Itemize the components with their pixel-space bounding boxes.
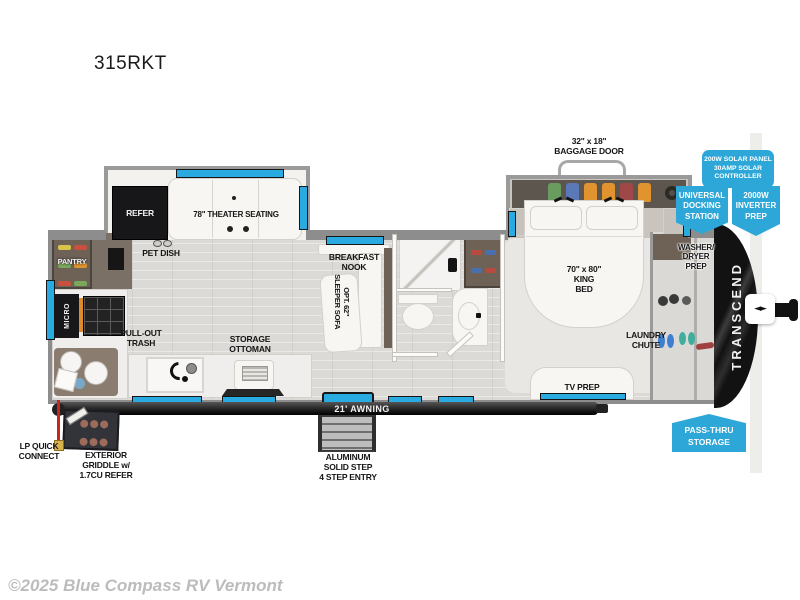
king-bed-label: 70" x 80" KING BED xyxy=(544,264,624,294)
cupholder-icon xyxy=(227,226,233,232)
hitch-arrows-icon: ◄► xyxy=(754,305,766,314)
speaker-icon-center xyxy=(669,190,675,196)
awning-label: 21' AWNING xyxy=(326,404,398,415)
floorplan-image: 315RKT REFER 78" THEATER SEATING PET DIS… xyxy=(0,0,800,600)
transcend-logo: TRANSCEND xyxy=(730,262,743,371)
burger-icon xyxy=(100,420,108,428)
baggage-door-label: 32" x 18" BAGGAGE DOOR xyxy=(540,136,638,156)
faucet-icon xyxy=(182,376,188,382)
pantry-label: PANTRY xyxy=(52,258,92,267)
range-accent xyxy=(79,298,83,332)
pantry-item-icon xyxy=(58,245,71,250)
towel-icon xyxy=(485,268,496,273)
steps-label: ALUMINUM SOLID STEP 4 STEP ENTRY xyxy=(304,452,392,482)
wall-segment xyxy=(48,230,106,240)
bath-wall xyxy=(500,234,505,362)
hitch-coupler xyxy=(789,299,798,321)
seat-divider xyxy=(258,180,259,238)
cupholder-icon xyxy=(232,196,236,200)
drain-icon xyxy=(186,363,197,374)
washer-dryer-label: WASHER/ DRYER PREP xyxy=(670,243,722,271)
bed-crease xyxy=(526,236,642,237)
burger-icon xyxy=(99,438,107,446)
towel-icon xyxy=(471,268,482,273)
solar-badge: 200W SOLAR PANEL 30AMP SOLAR CONTROLLER xyxy=(702,150,774,188)
pantry-item-icon xyxy=(74,281,87,286)
burger-icon xyxy=(79,438,87,446)
kitchen-window xyxy=(46,280,55,340)
bath-wall xyxy=(396,288,452,292)
griddle-label: EXTERIOR GRIDDLE w/ 1.7CU REFER xyxy=(66,450,146,480)
page-title: 315RKT xyxy=(94,54,167,73)
bath-wall xyxy=(392,352,438,357)
refrigerator-label: REFER xyxy=(112,208,168,218)
microwave: MICRO xyxy=(55,294,79,338)
storage-ottoman-label: STORAGE OTTOMAN xyxy=(216,334,284,354)
slideout-window xyxy=(176,169,284,178)
pet-dish-icon xyxy=(153,240,162,247)
pillow xyxy=(586,206,638,230)
nook-window xyxy=(326,236,384,245)
pet-dish-label: PET DISH xyxy=(128,248,194,258)
toilet xyxy=(402,303,434,330)
pillow xyxy=(530,206,582,230)
burger-icon xyxy=(89,438,97,446)
ottoman-mat xyxy=(222,389,284,396)
faucet-icon xyxy=(476,313,481,318)
shoe-icon xyxy=(658,296,668,306)
slideout-window xyxy=(299,186,308,230)
entry-steps xyxy=(318,415,376,452)
breakfast-nook-label: BREAKFAST NOOK xyxy=(314,252,394,272)
inverter-prep-badge: 2000W INVERTER PREP xyxy=(732,186,780,236)
linen-cabinet xyxy=(464,238,502,288)
dealer-watermark: ©2025 Blue Compass RV Vermont xyxy=(8,577,283,594)
sleeper-sofa-label: OPT. 62" SLEEPER SOFA xyxy=(332,262,350,342)
bedroom-window xyxy=(508,211,516,237)
burger-icon xyxy=(90,420,98,428)
cupholder-icon xyxy=(243,226,249,232)
cabinet-cutout xyxy=(108,248,124,270)
laundry-chute-label: LAUNDRY CHUTE xyxy=(610,330,682,350)
seat-divider xyxy=(212,180,213,238)
theater-seating xyxy=(168,178,302,240)
pet-dish-icon xyxy=(163,240,172,247)
lp-connect-label: LP QUICK CONNECT xyxy=(8,441,70,461)
hitch-marker: ◄► xyxy=(745,294,775,324)
lp-line xyxy=(57,400,60,442)
sink-bowl-icon xyxy=(84,361,108,385)
tv-prep-label: TV PREP xyxy=(548,382,616,392)
pull-out-trash-label: PULL-OUT TRASH xyxy=(110,328,172,348)
towel-icon xyxy=(471,250,482,255)
towel-icon xyxy=(485,250,496,255)
flipflop-icon xyxy=(688,332,695,345)
pantry-item-icon xyxy=(58,281,71,286)
pass-thru-badge: PASS-THRU STORAGE xyxy=(672,414,746,452)
laptop-icon xyxy=(242,366,268,381)
tv-screen xyxy=(540,393,626,400)
burger-icon xyxy=(80,420,88,428)
awning-end xyxy=(596,404,608,413)
microwave-label: MICRO xyxy=(64,303,71,329)
theater-seating-label: 78" THEATER SEATING xyxy=(170,210,302,219)
shoe-icon xyxy=(669,294,679,304)
pantry-item-icon xyxy=(74,245,87,250)
shoe-icon xyxy=(682,296,691,305)
shower-head-icon xyxy=(448,258,457,272)
